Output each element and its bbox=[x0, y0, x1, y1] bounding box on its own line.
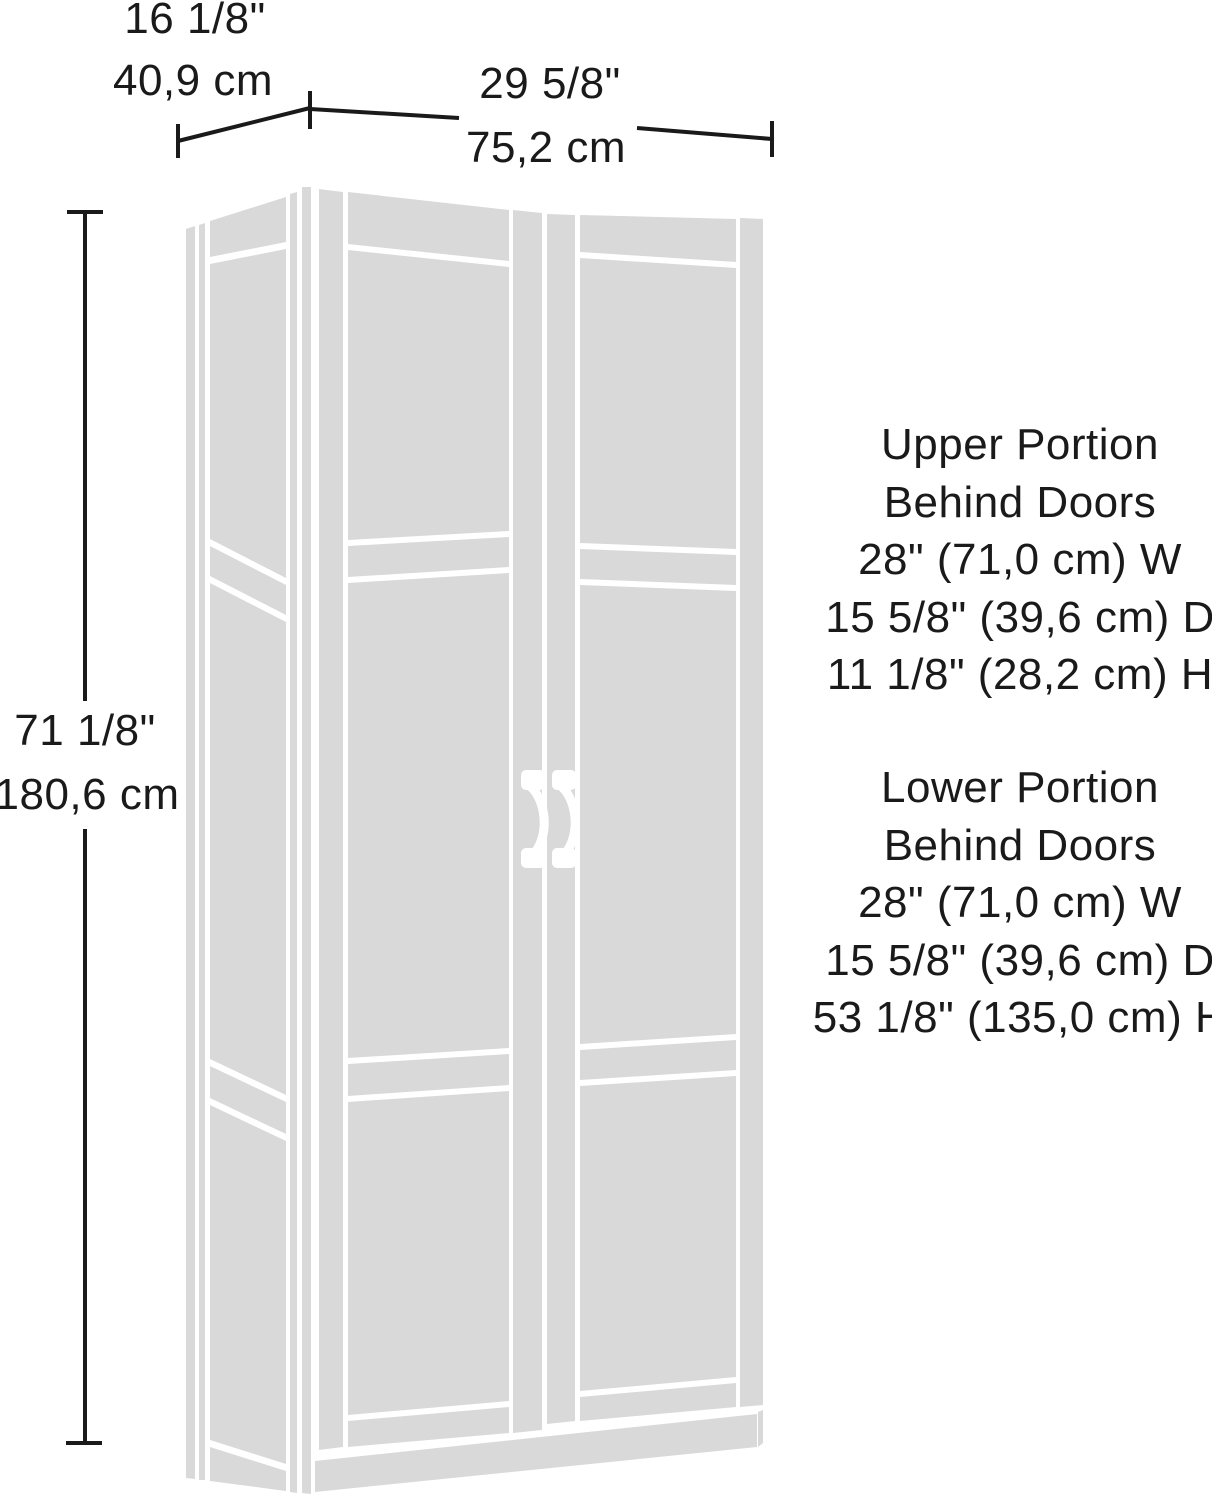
left-door-upper-panel bbox=[348, 250, 509, 540]
product-dimension-diagram: 16 1/8" 40,9 cm 29 5/8" 75,2 cm 71 1/8" … bbox=[0, 0, 1212, 1500]
depth-dimension-metric-label: 40,9 cm bbox=[113, 59, 273, 103]
depth-dimension-line bbox=[178, 108, 310, 158]
left-door-top-rail bbox=[348, 192, 509, 261]
annotation-line: 15 5/8" (39,6 cm) D bbox=[813, 932, 1212, 990]
left-door bbox=[319, 189, 542, 1450]
annotation-line: Behind Doors bbox=[813, 817, 1212, 875]
side-back-edge bbox=[186, 226, 195, 1479]
width-dimension-metric-label: 75,2 cm bbox=[466, 126, 626, 170]
right-door-bottom-panel bbox=[580, 1076, 736, 1391]
left-door-lower-rail bbox=[348, 1054, 509, 1096]
lower-portion-annotation: Lower Portion Behind Doors 28" (71,0 cm)… bbox=[813, 759, 1212, 1047]
annotation-line: 15 5/8" (39,6 cm) D bbox=[825, 589, 1212, 647]
side-middle-panel bbox=[210, 583, 286, 1095]
width-dimension-inches-label: 29 5/8" bbox=[479, 62, 620, 106]
left-door-mid-rail bbox=[348, 537, 509, 577]
corner-post bbox=[302, 187, 311, 1494]
right-door-lower-rail bbox=[580, 1040, 736, 1080]
height-dimension-inches-label: 71 1/8" bbox=[14, 709, 155, 753]
depth-dimension-inches-label: 16 1/8" bbox=[124, 0, 265, 41]
left-door-bottom-rail bbox=[348, 1407, 509, 1447]
left-door-middle-panel bbox=[348, 573, 509, 1058]
side-bottom-panel bbox=[210, 1105, 286, 1464]
side-front-stile bbox=[290, 192, 297, 1493]
side-top-rail bbox=[210, 197, 286, 257]
side-back-stile bbox=[199, 223, 205, 1480]
right-door-upper-panel bbox=[580, 258, 736, 549]
right-door-top-rail bbox=[580, 215, 736, 262]
cabinet-line-drawing bbox=[0, 0, 1212, 1500]
right-door-right-stile bbox=[740, 218, 763, 1407]
height-dimension-line bbox=[66, 212, 103, 1443]
cabinet-side-panel bbox=[186, 192, 297, 1493]
side-upper-panel bbox=[210, 249, 286, 578]
annotation-line: Behind Doors bbox=[825, 474, 1212, 532]
right-door-mid-rail bbox=[580, 549, 736, 585]
left-door-left-stile bbox=[319, 189, 343, 1450]
annotation-line: 11 1/8" (28,2 cm) H bbox=[825, 646, 1212, 704]
base-right-sliver bbox=[758, 1410, 763, 1447]
left-door-right-stile bbox=[513, 210, 542, 1433]
width-dim-line-a bbox=[310, 109, 459, 118]
right-door-middle-panel bbox=[580, 585, 736, 1044]
annotation-line: Lower Portion bbox=[813, 759, 1212, 817]
annotation-line: 53 1/8" (135,0 cm) H bbox=[813, 989, 1212, 1047]
annotation-line: Upper Portion bbox=[825, 416, 1212, 474]
left-door-bottom-panel bbox=[348, 1091, 509, 1415]
height-dimension-metric-label: 180,6 cm bbox=[0, 773, 179, 817]
annotation-line: 28" (71,0 cm) W bbox=[813, 874, 1212, 932]
upper-portion-annotation: Upper Portion Behind Doors 28" (71,0 cm)… bbox=[825, 416, 1212, 704]
annotation-line: 28" (71,0 cm) W bbox=[825, 531, 1212, 589]
width-dim-line-b bbox=[637, 128, 772, 139]
depth-dim-line bbox=[178, 108, 310, 141]
